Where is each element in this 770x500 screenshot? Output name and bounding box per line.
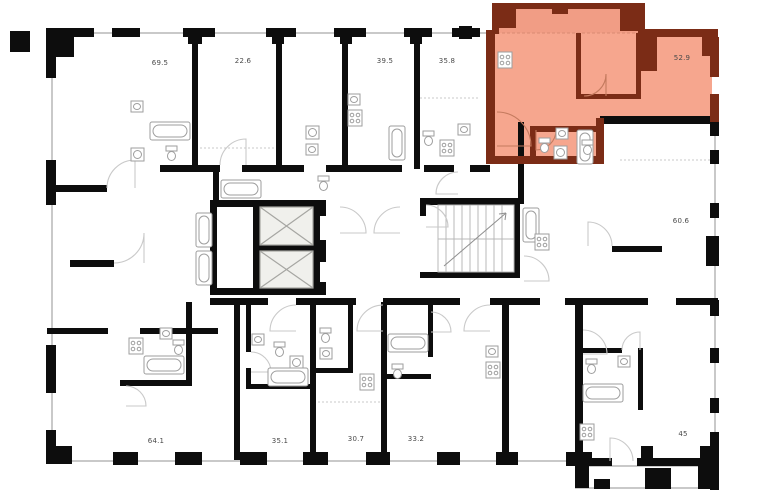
floor-plan-canvas: 69.5 22.6 39.5 35.8 52.9 60.6 45 64.1 35… (0, 0, 770, 500)
floor-plan-svg: 69.5 22.6 39.5 35.8 52.9 60.6 45 64.1 35… (0, 0, 770, 500)
unit-60-6[interactable] (524, 124, 710, 298)
unit-45[interactable] (583, 305, 710, 458)
unit-69-5[interactable] (56, 37, 192, 165)
unit-64-1[interactable] (56, 334, 186, 458)
bathtub-icon (196, 213, 212, 247)
unit-30-7[interactable] (316, 305, 381, 458)
unit-35-1[interactable] (240, 305, 310, 458)
bathtub-icon (221, 180, 261, 198)
sink-icon (306, 144, 318, 155)
washer-icon (306, 126, 319, 139)
bathtub-icon (196, 251, 212, 285)
unit-22-6[interactable] (198, 37, 276, 165)
unit-39-5[interactable] (348, 37, 414, 165)
unit-35-8[interactable] (420, 37, 486, 165)
unit-33-2[interactable] (387, 305, 502, 458)
toilet-icon (318, 176, 329, 191)
stairs-icon (438, 205, 514, 272)
